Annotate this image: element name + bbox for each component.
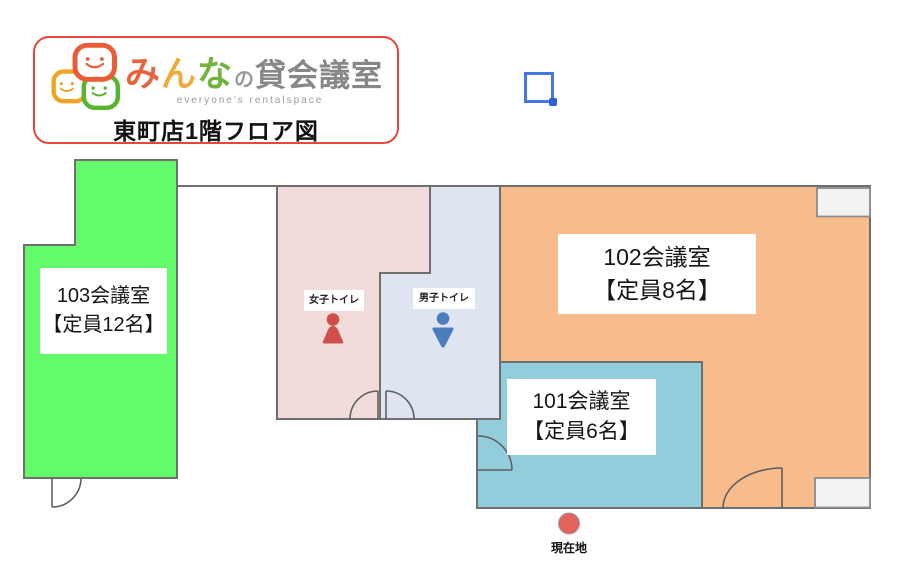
room-102-capacity: 【定員8名】 xyxy=(558,274,756,307)
header-box: み ん な の 貸会議室 everyone's rentalspace 東町店1… xyxy=(33,36,399,144)
room-103-label: 103会議室 【定員12名】 xyxy=(40,268,167,354)
brand-name: み ん な の 貸会議室 xyxy=(125,46,395,98)
brand-char: 貸会議室 xyxy=(255,50,383,95)
room-102-name: 102会議室 xyxy=(558,241,756,274)
room-102-label: 102会議室 【定員8名】 xyxy=(558,234,756,314)
bubble-orange xyxy=(75,45,114,79)
door-103 xyxy=(52,478,81,507)
room-101-label: 101会議室 【定員6名】 xyxy=(507,379,656,455)
current-location-label: 現在地 xyxy=(542,539,596,556)
room-101-capacity: 【定員6名】 xyxy=(507,417,656,447)
brand-logo-icon xyxy=(45,42,127,110)
room-103-capacity: 【定員12名】 xyxy=(40,311,167,340)
room-101-name: 101会議室 xyxy=(507,387,656,417)
room-103-name: 103会議室 xyxy=(40,282,167,311)
brand-char: み xyxy=(125,46,161,97)
mens-toilet-label: 男子トイレ xyxy=(413,288,475,309)
selection-handle[interactable] xyxy=(549,98,557,106)
brand-char: ん xyxy=(161,46,197,97)
current-location-marker xyxy=(559,513,580,534)
window-bottom-right xyxy=(815,478,870,508)
brand-char: な xyxy=(197,46,233,97)
selection-square[interactable] xyxy=(524,72,554,103)
brand-subtitle: everyone's rentalspace xyxy=(175,95,325,106)
floorplan-page: み ん な の 貸会議室 everyone's rentalspace 東町店1… xyxy=(0,0,900,577)
page-title: 東町店1階フロア図 xyxy=(35,112,397,146)
window-top-right xyxy=(817,188,870,217)
womens-toilet-label: 女子トイレ xyxy=(304,290,364,311)
brand-char: の xyxy=(234,63,254,92)
